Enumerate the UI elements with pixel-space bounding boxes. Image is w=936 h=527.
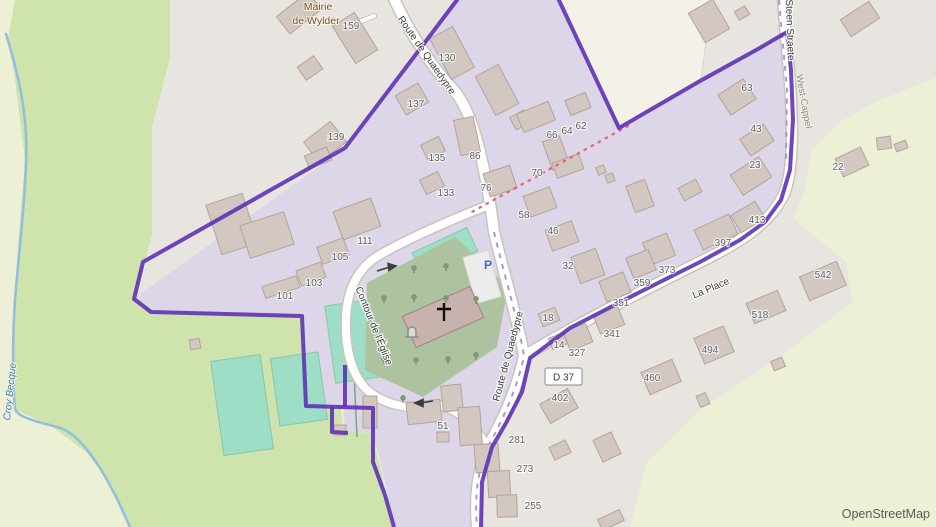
- house-number: 327: [569, 348, 586, 359]
- house-number: 76: [480, 183, 492, 194]
- house-number: 351: [613, 298, 630, 309]
- house-number: 32: [562, 261, 574, 272]
- house-number: 137: [408, 99, 425, 110]
- map-canvas[interactable]: P D 37 Route de Quaedypre Route de Quaed…: [0, 0, 936, 527]
- house-number: 373: [659, 265, 676, 276]
- svg-text:D 37: D 37: [553, 373, 575, 384]
- house-number: 159: [343, 21, 360, 32]
- attribution-link[interactable]: OpenStreetMap: [842, 507, 930, 521]
- house-number: 397: [715, 238, 732, 249]
- house-number: 62: [575, 121, 587, 132]
- house-number: 281: [509, 435, 526, 446]
- route-shield-d37: D 37: [545, 368, 582, 385]
- house-number: 63: [741, 83, 753, 94]
- house-number: 103: [306, 278, 323, 289]
- house-number: 101: [277, 291, 294, 302]
- house-number: 413: [749, 215, 766, 226]
- house-number: 460: [644, 373, 661, 384]
- house-number: 139: [328, 132, 345, 143]
- house-number: 518: [752, 310, 769, 321]
- house-number: 359: [634, 278, 651, 289]
- house-number: 111: [357, 236, 373, 247]
- house-number: 18: [542, 313, 554, 324]
- house-number: 43: [750, 124, 762, 135]
- house-number: 105: [332, 252, 349, 263]
- house-number: 133: [438, 188, 455, 199]
- house-number: 86: [469, 151, 481, 162]
- house-number: 46: [547, 226, 559, 237]
- house-number: 70: [531, 168, 543, 179]
- house-number: 51: [437, 421, 449, 432]
- house-number: 14: [553, 340, 565, 351]
- house-number: 135: [429, 153, 446, 164]
- house-number: 64: [561, 126, 573, 137]
- house-number: 494: [702, 345, 719, 356]
- house-number: 58: [518, 210, 530, 221]
- house-number: 22: [832, 162, 844, 173]
- label-mairie-line1: Mairie: [304, 1, 333, 13]
- house-number: 23: [749, 160, 761, 171]
- label-mairie-line2: de Wylder: [292, 15, 340, 27]
- parking-icon: P: [484, 258, 492, 272]
- house-number: 542: [815, 270, 832, 281]
- house-number: 402: [552, 393, 569, 404]
- house-number: 341: [604, 329, 621, 340]
- house-number: 130: [439, 53, 456, 64]
- house-number: 273: [517, 464, 534, 475]
- house-number: 66: [546, 130, 558, 141]
- street-label-steen-straete: Steen Straete: [783, 0, 796, 61]
- house-number: 255: [525, 501, 542, 512]
